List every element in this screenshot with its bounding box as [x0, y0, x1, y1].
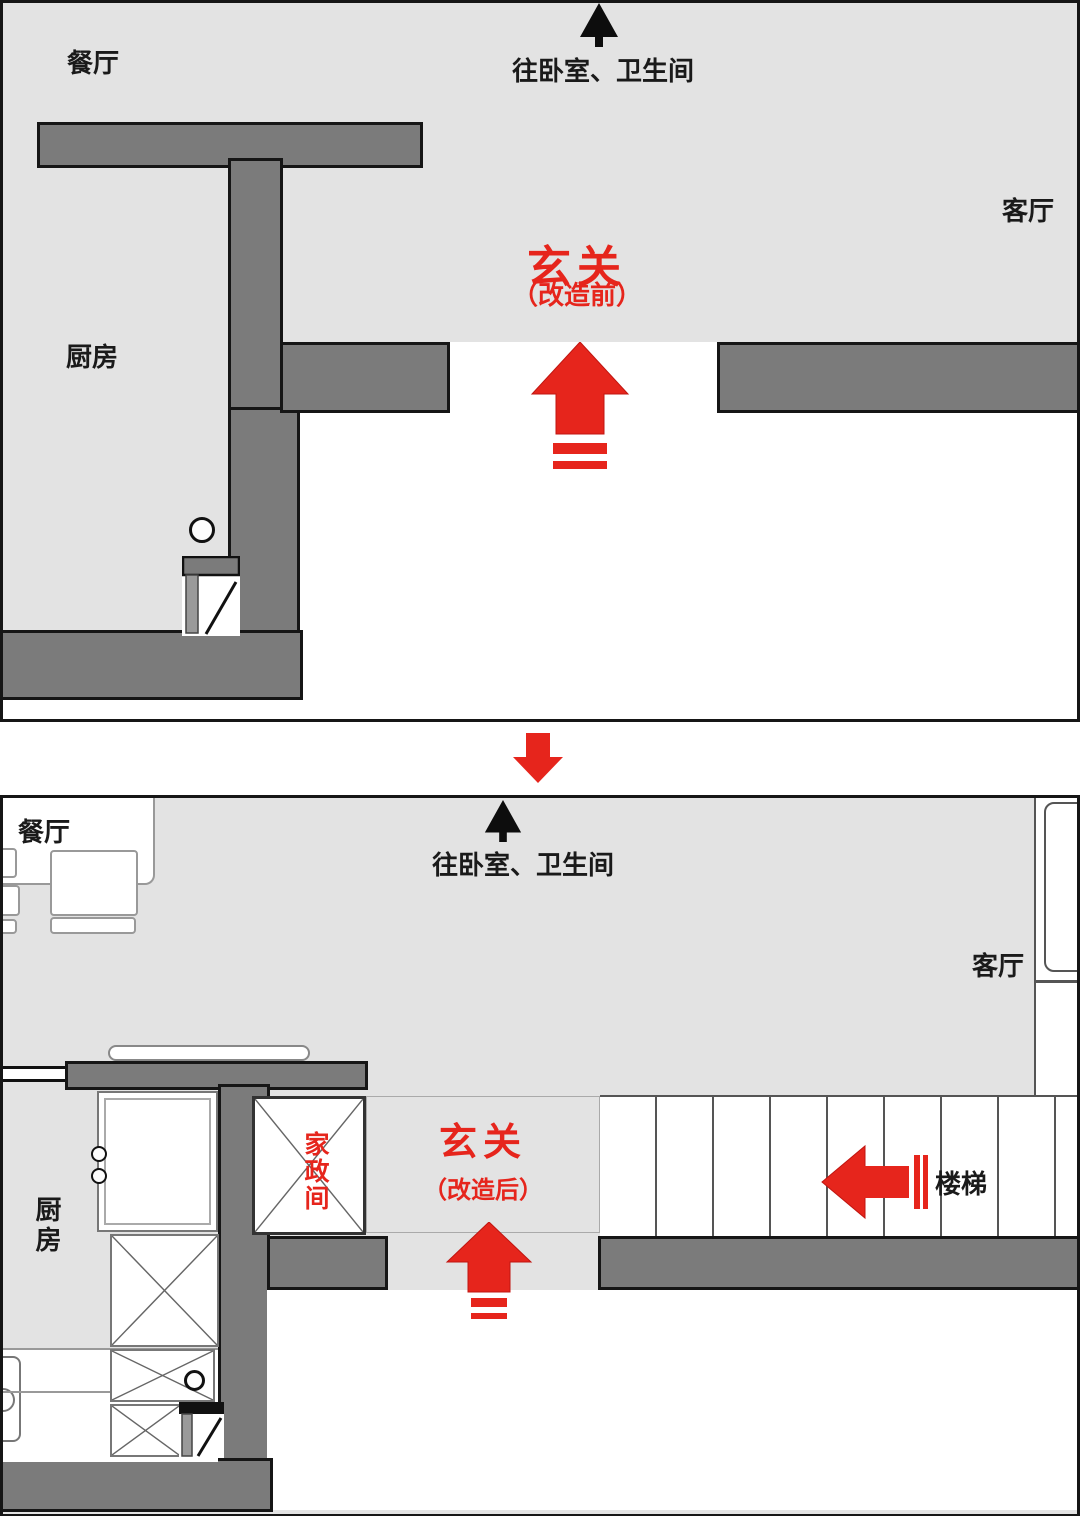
laundry-label: 家政间 [297, 1131, 333, 1212]
floorplan-comparison: 餐厅 厨房 客厅 往卧室、卫生间 玄关 （改造前） 餐厅 往卧室、卫生间 [0, 0, 1080, 1516]
up-arrow-icon [578, 3, 620, 47]
counter-divider [3, 1391, 110, 1393]
wall-door-left [267, 1236, 388, 1290]
fridge-cabinet [97, 1091, 218, 1232]
window [0, 1066, 65, 1082]
up-arrow-icon [482, 800, 524, 842]
wall-door-right [717, 342, 1080, 413]
entry-subtitle: （改造前） [427, 275, 727, 312]
outside-void [267, 1290, 1080, 1510]
cabinet-knob [91, 1146, 107, 1162]
chair [0, 848, 17, 878]
countertop [108, 1045, 310, 1061]
chair [50, 917, 136, 934]
entry-floor: 玄关 （改造后） [366, 1096, 600, 1233]
wall-stem [228, 158, 283, 420]
dining-label: 餐厅 [67, 43, 119, 80]
laundry-room: 家政间 [252, 1096, 366, 1235]
wall-main [65, 1061, 368, 1090]
cabinet-knob [91, 1168, 107, 1184]
stairs-label: 楼梯 [935, 1164, 987, 1201]
living-label: 客厅 [972, 946, 1024, 983]
hallway-void [297, 407, 1080, 719]
entry-title: 玄关 [367, 1111, 599, 1166]
kitchen-door-icon [179, 1402, 224, 1458]
down-arrow-icon [512, 733, 564, 783]
door-knob [184, 1370, 205, 1391]
door-knob [189, 517, 215, 543]
kitchen-label: 厨房 [29, 1196, 66, 1256]
wall-door-right [598, 1236, 1080, 1290]
before-panel: 餐厅 厨房 客厅 往卧室、卫生间 玄关 （改造前） [0, 0, 1080, 722]
wall-kitchen-bottom [0, 630, 303, 700]
kitchen-label: 厨房 [66, 337, 118, 374]
cabinet-door [104, 1098, 211, 1225]
after-panel: 餐厅 往卧室、卫生间 客厅 楼梯 玄关 （改造后） 家政间 [0, 795, 1080, 1516]
entry-subtitle: （改造后） [367, 1170, 599, 1205]
entry-flow-arrow-icon [528, 342, 633, 472]
wall-door-left [280, 342, 450, 413]
dining-table [50, 850, 138, 916]
sofa [1044, 802, 1080, 972]
divider-line [1034, 980, 1080, 983]
stairs-direction-arrow-icon [820, 1143, 928, 1221]
cabinet-x [110, 1404, 181, 1457]
dining-label: 餐厅 [18, 812, 70, 849]
living-label: 客厅 [1002, 191, 1054, 228]
cabinet-x [110, 1234, 219, 1347]
entry-flow-arrow-icon [443, 1222, 535, 1322]
kitchen-door-icon [182, 556, 240, 636]
nav-note: 往卧室、卫生间 [373, 845, 673, 882]
wall-bottom [0, 1458, 273, 1512]
chair [0, 885, 20, 916]
chair [0, 919, 17, 934]
nav-note: 往卧室、卫生间 [453, 51, 753, 88]
